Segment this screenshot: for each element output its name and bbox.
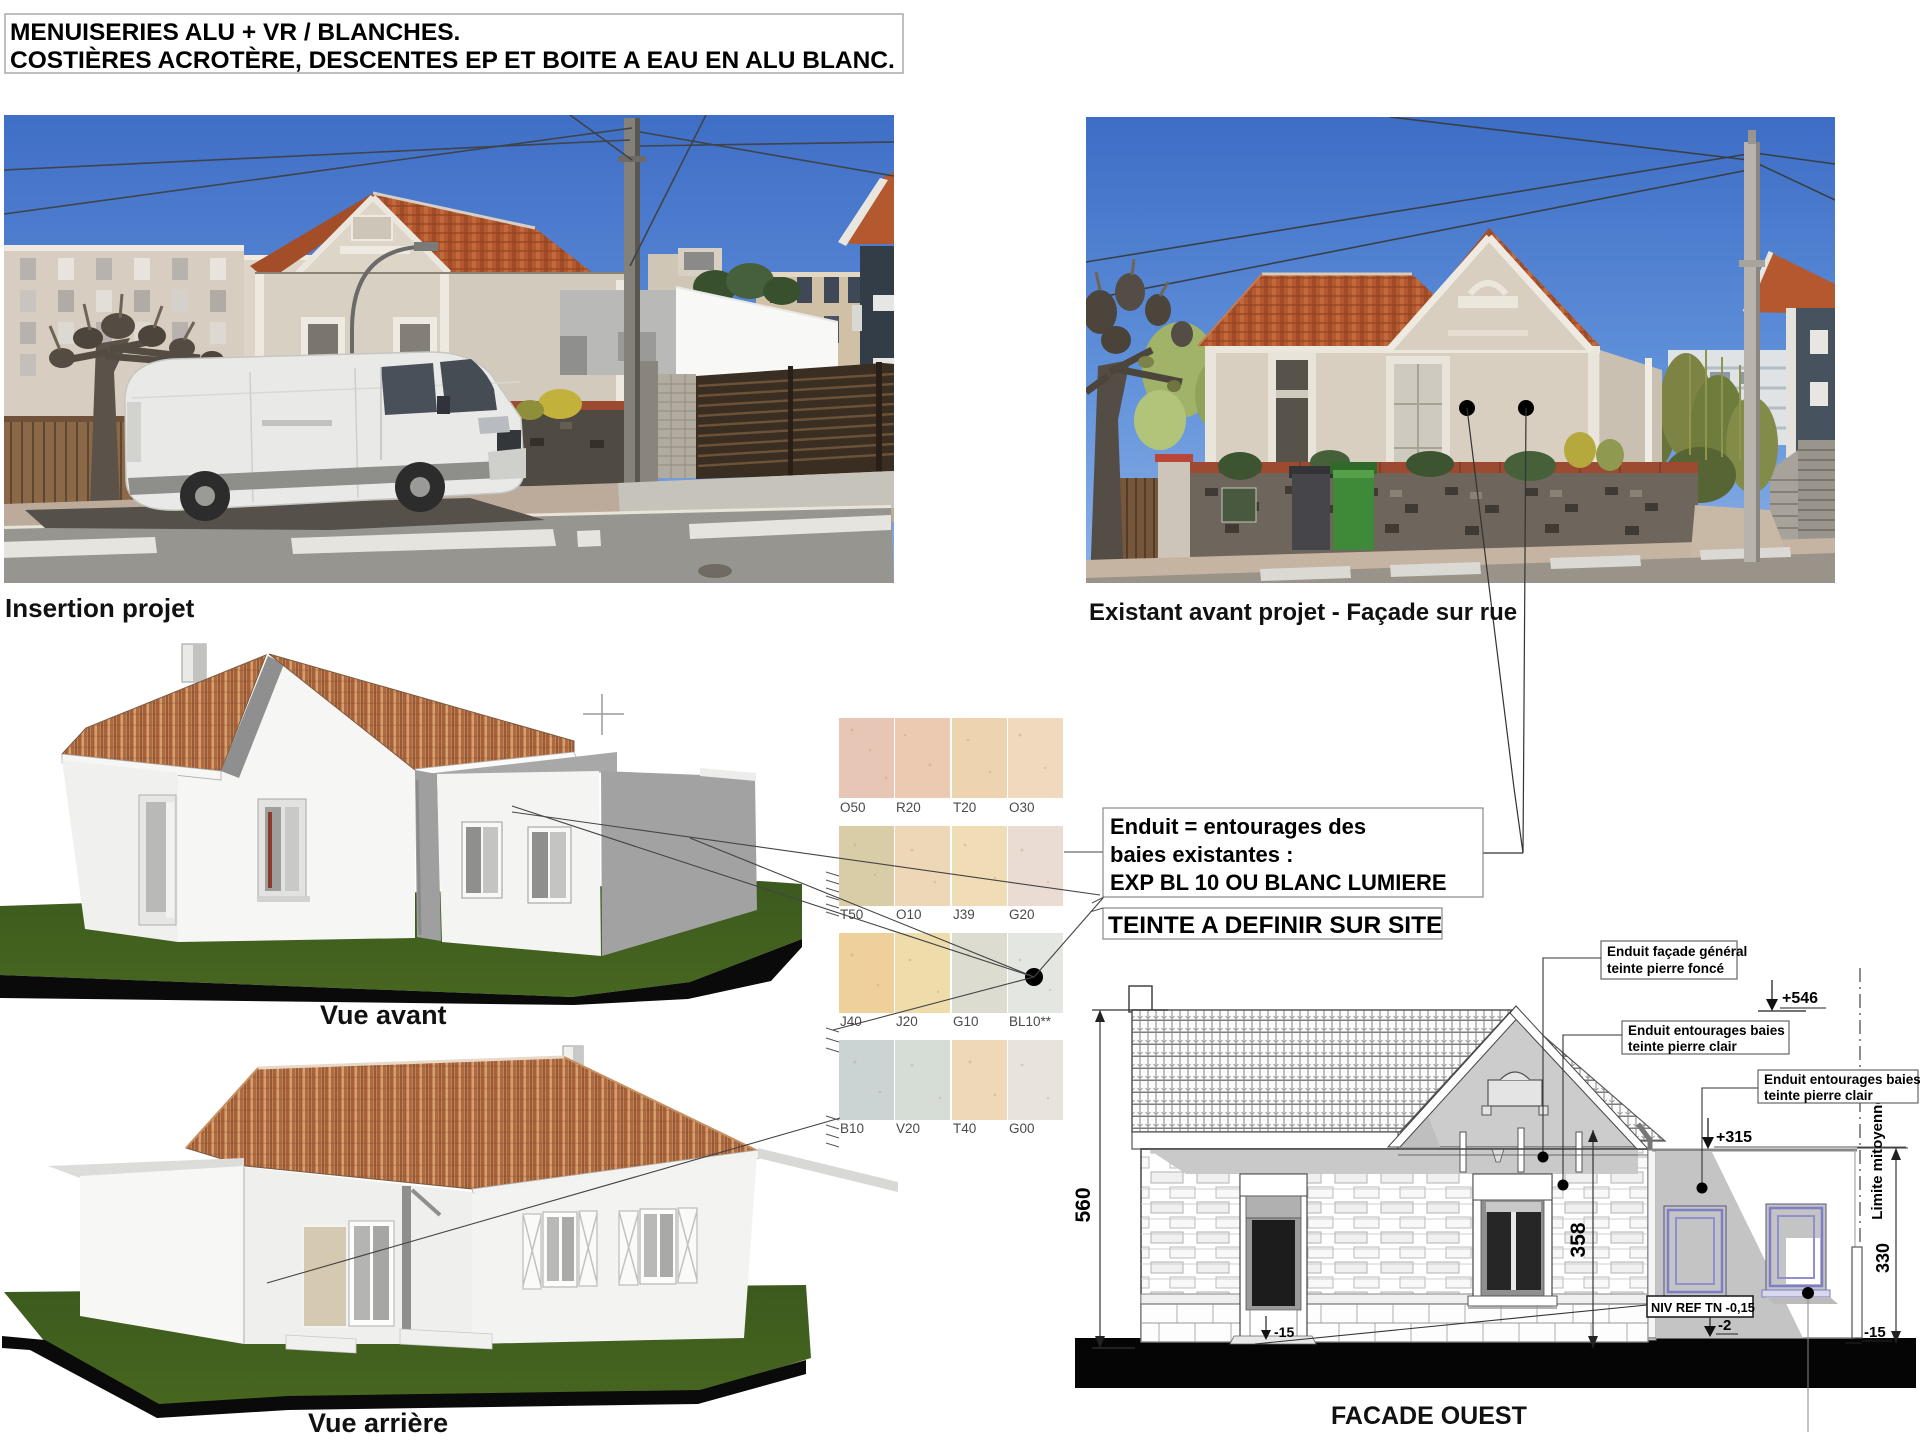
svg-text:teinte pierre foncé: teinte pierre foncé xyxy=(1607,961,1725,976)
svg-text:O10: O10 xyxy=(896,907,922,922)
svg-text:O30: O30 xyxy=(1009,800,1035,815)
svg-text:T20: T20 xyxy=(953,800,976,815)
svg-text:COSTIÈRES ACROTÈRE, DESCENTES: COSTIÈRES ACROTÈRE, DESCENTES EP ET BOIT… xyxy=(10,46,895,74)
svg-text:Existant avant projet - Façade: Existant avant projet - Façade sur rue xyxy=(1089,599,1517,626)
svg-text:MENUISERIES ALU + VR / BLANCHE: MENUISERIES ALU + VR / BLANCHES. xyxy=(10,19,460,46)
svg-text:Vue avant: Vue avant xyxy=(320,1000,447,1030)
svg-text:-15: -15 xyxy=(1274,1324,1294,1340)
svg-text:-2: -2 xyxy=(1718,1317,1731,1334)
svg-text:J20: J20 xyxy=(896,1014,918,1029)
svg-text:560: 560 xyxy=(1072,1187,1095,1222)
svg-text:NIV REF TN -0,15: NIV REF TN -0,15 xyxy=(1651,1300,1755,1315)
svg-text:Insertion projet: Insertion projet xyxy=(5,593,195,623)
svg-text:R20: R20 xyxy=(896,800,921,815)
svg-text:B10: B10 xyxy=(840,1121,864,1136)
svg-text:teinte pierre clair: teinte pierre clair xyxy=(1764,1088,1874,1103)
svg-text:T40: T40 xyxy=(953,1121,976,1136)
svg-text:Enduit entourages baies: Enduit entourages baies xyxy=(1764,1072,1920,1087)
svg-text:G00: G00 xyxy=(1009,1121,1035,1136)
svg-text:baies existantes :: baies existantes : xyxy=(1110,842,1293,867)
svg-text:Vue arrière: Vue arrière xyxy=(308,1408,448,1438)
svg-text:Enduit entourages baies: Enduit entourages baies xyxy=(1628,1023,1785,1038)
svg-text:FACADE OUEST: FACADE OUEST xyxy=(1331,1402,1527,1430)
svg-text:Limite mitoyenne: Limite mitoyenne xyxy=(1869,1096,1886,1219)
svg-text:V20: V20 xyxy=(896,1121,920,1136)
svg-text:G20: G20 xyxy=(1009,907,1035,922)
svg-text:Enduit = entourages des: Enduit = entourages des xyxy=(1110,814,1366,839)
svg-text:J39: J39 xyxy=(953,907,975,922)
svg-text:BL10**: BL10** xyxy=(1009,1014,1052,1029)
svg-text:-15: -15 xyxy=(1864,1324,1886,1341)
svg-text:G10: G10 xyxy=(953,1014,979,1029)
svg-text:TEINTE A DEFINIR SUR SITE: TEINTE A DEFINIR SUR SITE xyxy=(1108,912,1442,939)
svg-text:O50: O50 xyxy=(840,800,866,815)
svg-text:+546: +546 xyxy=(1782,990,1818,1007)
svg-text:358: 358 xyxy=(1567,1222,1590,1257)
svg-text:teinte pierre clair: teinte pierre clair xyxy=(1628,1039,1738,1054)
svg-text:Enduit façade général: Enduit façade général xyxy=(1607,944,1747,959)
svg-text:EXP BL 10 OU BLANC LUMIERE: EXP BL 10 OU BLANC LUMIERE xyxy=(1110,870,1447,895)
svg-text:+315: +315 xyxy=(1716,1129,1752,1146)
svg-text:330: 330 xyxy=(1873,1243,1893,1273)
